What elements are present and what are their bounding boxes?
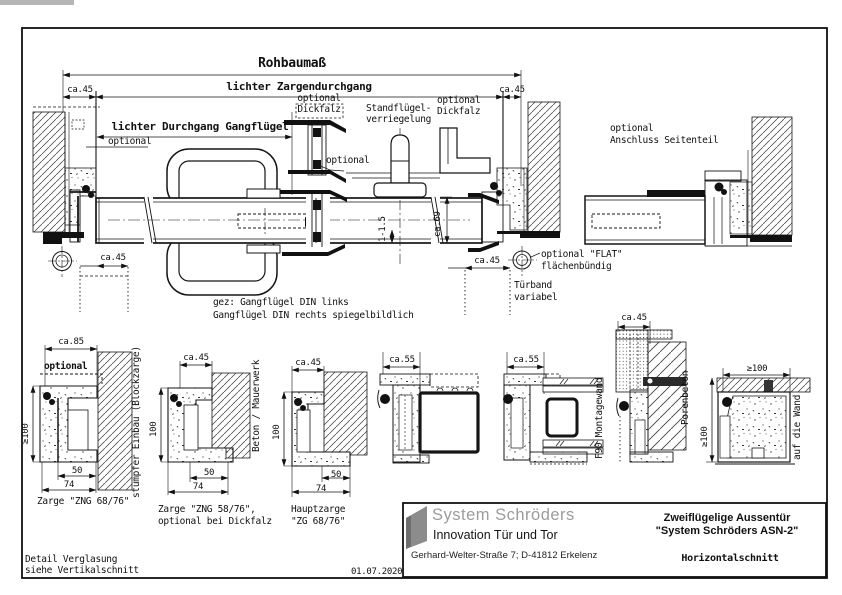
- s5-side-label: F90 Montagewand: [595, 378, 606, 459]
- s3-caption-2: "ZG 68/76": [291, 517, 345, 528]
- s2-dim-rebate: 50: [204, 468, 214, 478]
- s3-dim-rebate: 50: [331, 470, 341, 480]
- label-flat-1: optional "FLAT": [541, 250, 622, 261]
- note-gez-2: Gangflügel DIN rechts spiegelbildlich: [213, 311, 414, 322]
- s5-top-dim: ca.55: [513, 355, 539, 365]
- s1-caption: Zarge "ZNG 68/76": [37, 497, 129, 508]
- s4-top-dim: ca.55: [389, 355, 415, 365]
- s1-left-dim: ≥100: [21, 424, 31, 444]
- s2-caption-2: optional bei Dickfalz: [158, 517, 272, 528]
- s7-top-dim: ≥100: [747, 364, 767, 374]
- drawing-date: 01.07.2020: [351, 567, 402, 577]
- dim-ca45-hinge-left: ca.45: [100, 253, 126, 263]
- s6-top-dim: ca.45: [621, 313, 647, 323]
- dim-gangfluegel-label: lichter Durchgang Gangflügel: [111, 121, 288, 133]
- drawing-subtitle: Horizontalschnitt: [681, 553, 778, 564]
- label-optional-mid: optional: [326, 156, 369, 167]
- s2-top-dim: ca.45: [183, 353, 209, 363]
- detail-section-glass-fixed: [378, 352, 478, 463]
- dim-rohbaumass-label: Rohbaumaß: [258, 57, 326, 72]
- s1-dim-total: 74: [64, 480, 74, 490]
- frame-note-2: siehe Vertikalschnitt: [25, 566, 139, 577]
- drawing-title-1: Zweiflügelige Aussentür: [664, 512, 791, 524]
- detail-section-hauptzarge: [284, 366, 367, 497]
- s2-caption-1: Zarge "ZNG 58/76",: [158, 505, 256, 516]
- s2-left-dim: 100: [149, 422, 159, 437]
- dim-ca69-label: ca.69: [433, 211, 443, 237]
- s2-side-label: Beton / Mauerwerk: [252, 360, 263, 452]
- label-optional-left: optional: [108, 137, 151, 148]
- s3-left-dim: 100: [272, 425, 282, 440]
- dim-zargendurchgang-label: lichter Zargendurchgang: [226, 81, 371, 93]
- s1-top-dim: ca.85: [58, 337, 84, 347]
- s1-dim-rebate: 50: [72, 466, 82, 476]
- s7-side-label: auf die Wand: [793, 395, 804, 460]
- label-seitenteil-1: optional: [610, 124, 653, 135]
- label-seitenteil-2: Anschluss Seitenteil: [610, 136, 718, 147]
- dim-ca45-hinge-right: ca.45: [474, 256, 500, 266]
- detail-section-f90: [503, 352, 603, 464]
- label-flat-2: flächenbündig: [541, 262, 611, 273]
- cad-drawing-page: Rohbaumaß lichter Zargendurchgang ca.45 …: [0, 0, 842, 595]
- label-dickfalz-mid-2: Dickfalz: [297, 105, 340, 116]
- dim-ca45-top-right: ca.45: [499, 85, 525, 95]
- label-dickfalz-right-2: Dickfalz: [437, 107, 480, 118]
- label-tuerband-2: variabel: [514, 293, 557, 304]
- label-tuerband-1: Türband: [514, 281, 552, 292]
- note-gez-1: gez: Gangflügel DIN links: [213, 298, 349, 309]
- company-name: System Schröders: [432, 506, 575, 524]
- dim-gap-label: 1-1.5: [378, 216, 388, 242]
- s7-left-dim: ≥100: [700, 427, 710, 447]
- label-standfluegel-2: verriegelung: [366, 115, 431, 126]
- s2-dim-total: 74: [193, 482, 203, 492]
- company-tagline: Innovation Tür und Tor: [433, 528, 558, 542]
- s6-side-label: Porenbeton: [681, 371, 692, 425]
- s3-top-dim: ca.45: [295, 358, 321, 368]
- dim-ca45-top-left: ca.45: [67, 85, 93, 95]
- s1-extra-label: optional: [44, 362, 87, 373]
- company-address: Gerhard-Welter-Straße 7; D-41812 Erkelen…: [411, 551, 597, 562]
- drawing-title-2: "System Schröders ASN-2": [656, 525, 799, 537]
- s3-dim-total: 74: [316, 484, 326, 494]
- s3-caption-1: Hauptzarge: [291, 505, 345, 516]
- detail-section-porenbeton: [616, 321, 686, 462]
- s1-side-label: stumpfer Einbau (Blockzarge): [132, 346, 143, 498]
